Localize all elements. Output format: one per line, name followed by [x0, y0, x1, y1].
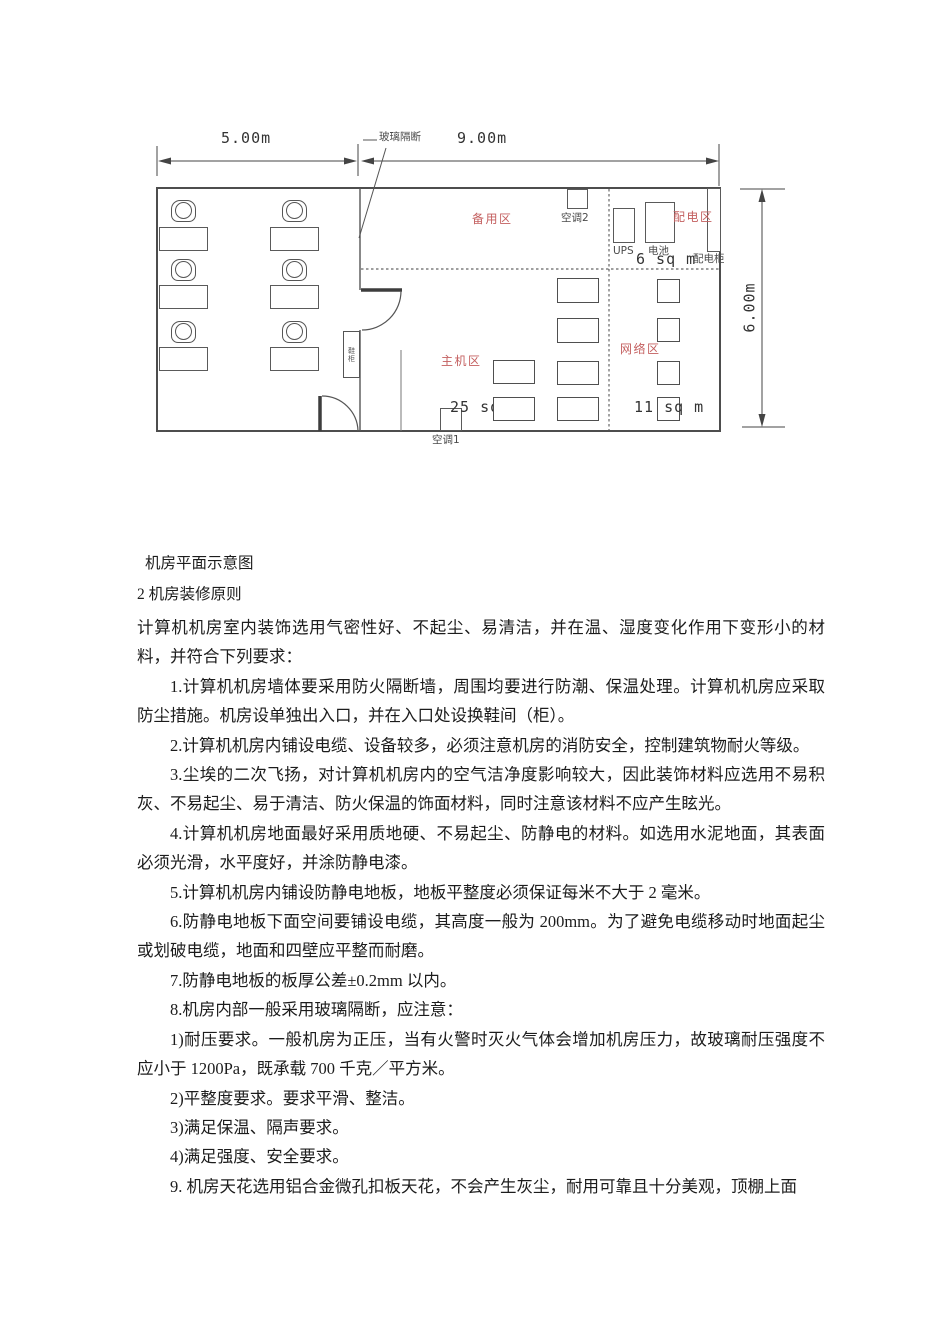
dimension-6m-label: 6.00m — [743, 282, 758, 334]
chair — [281, 200, 308, 223]
figure-caption: 机房平面示意图 — [137, 548, 825, 579]
desk — [270, 227, 319, 251]
dimension-line-9m — [361, 144, 719, 186]
network-area-size-label: 11 sq m — [634, 400, 704, 415]
floor-plan-diagram: 鞋柜 25 sq 5.00m 9.00m 6.00m 备用区 配电区 主机区 网… — [0, 0, 950, 480]
list-item-7: 7.防静电地板的板厚公差±0.2mm 以内。 — [137, 966, 825, 995]
ac2-label: 空调2 — [561, 213, 589, 224]
shoe-cabinet: 鞋柜 — [343, 331, 360, 378]
server-rack — [493, 397, 535, 421]
ups-unit — [613, 208, 635, 243]
power-area-size-label: 6 sq m — [636, 252, 696, 267]
desk — [159, 285, 208, 309]
document-text: 机房平面示意图 2 机房装修原则 计算机机房室内装饰选用气密性好、不起尘、易清洁… — [137, 548, 825, 1201]
main-zone-label: 主机区 — [441, 355, 482, 367]
backup-zone-label: 备用区 — [472, 213, 513, 225]
desk — [270, 347, 319, 371]
network-rack — [657, 361, 680, 385]
document-page: 鞋柜 25 sq 5.00m 9.00m 6.00m 备用区 配电区 主机区 网… — [0, 0, 950, 1344]
entrance-door — [320, 396, 358, 431]
ac1-label: 空调1 — [432, 435, 460, 446]
room-outline — [157, 188, 720, 431]
dimension-9m-label: 9.00m — [457, 131, 507, 146]
server-rack — [557, 397, 599, 421]
network-rack — [657, 318, 680, 342]
network-rack — [657, 279, 680, 303]
list-item-3: 3.尘埃的二次飞扬，对计算机机房内的空气洁净度影响较大，因此装饰材料应选用不易积… — [137, 760, 825, 819]
list-item-4: 4.计算机机房地面最好采用质地硬、不易起尘、防静电的材料。如选用水泥地面，其表面… — [137, 819, 825, 878]
chair — [170, 321, 197, 344]
section-heading: 2 机房装修原则 — [137, 579, 825, 610]
power-cabinet-label: 配电柜 — [693, 254, 725, 265]
chair — [281, 259, 308, 282]
dimension-line-5m — [157, 144, 358, 176]
partition-door — [361, 290, 402, 330]
desk — [159, 347, 208, 371]
server-rack — [557, 361, 599, 385]
glass-partition-label: 玻璃隔断 — [379, 132, 421, 143]
intro-paragraph: 计算机机房室内装饰选用气密性好、不起尘、易清洁，并在温、湿度变化作用下变形小的材… — [137, 613, 825, 672]
shoe-cabinet-label: 鞋柜 — [347, 347, 357, 363]
server-rack — [557, 318, 599, 343]
power-zone-label: 配电区 — [673, 211, 714, 223]
server-rack — [557, 278, 599, 303]
network-zone-label: 网络区 — [620, 343, 661, 355]
list-item-6: 6.防静电地板下面空间要铺设电缆，其高度一般为 200mm。为了避免电缆移动时地… — [137, 907, 825, 966]
list-item-5: 5.计算机机房内铺设防静电地板，地板平整度必须保证每米不大于 2 毫米。 — [137, 878, 825, 907]
list-subitem-2: 2)平整度要求。要求平滑、整洁。 — [137, 1084, 825, 1113]
dimension-5m-label: 5.00m — [221, 131, 271, 146]
chair — [170, 259, 197, 282]
list-item-1: 1.计算机机房墙体要采用防火隔断墙，周围均要进行防潮、保温处理。计算机机房应采取… — [137, 672, 825, 731]
ups-label: UPS — [613, 246, 634, 257]
ac2-unit — [567, 189, 588, 209]
desk — [270, 285, 319, 309]
server-rack — [493, 360, 535, 384]
list-subitem-4: 4)满足强度、安全要求。 — [137, 1142, 825, 1171]
list-item-2: 2.计算机机房内铺设电缆、设备较多，必须注意机房的消防安全，控制建筑物耐火等级。 — [137, 731, 825, 760]
list-subitem-3: 3)满足保温、隔声要求。 — [137, 1113, 825, 1142]
list-item-8: 8.机房内部一般采用玻璃隔断，应注意： — [137, 995, 825, 1024]
list-subitem-1: 1)耐压要求。一般机房为正压，当有火警时灭火气体会增加机房压力，故玻璃耐压强度不… — [137, 1025, 825, 1084]
list-item-9: 9. 机房天花选用铝合金微孔扣板天花，不会产生灰尘，耐用可靠且十分美观，顶棚上面 — [137, 1172, 825, 1201]
battery-unit — [645, 202, 675, 243]
chair — [281, 321, 308, 344]
chair — [170, 200, 197, 223]
desk — [159, 227, 208, 251]
